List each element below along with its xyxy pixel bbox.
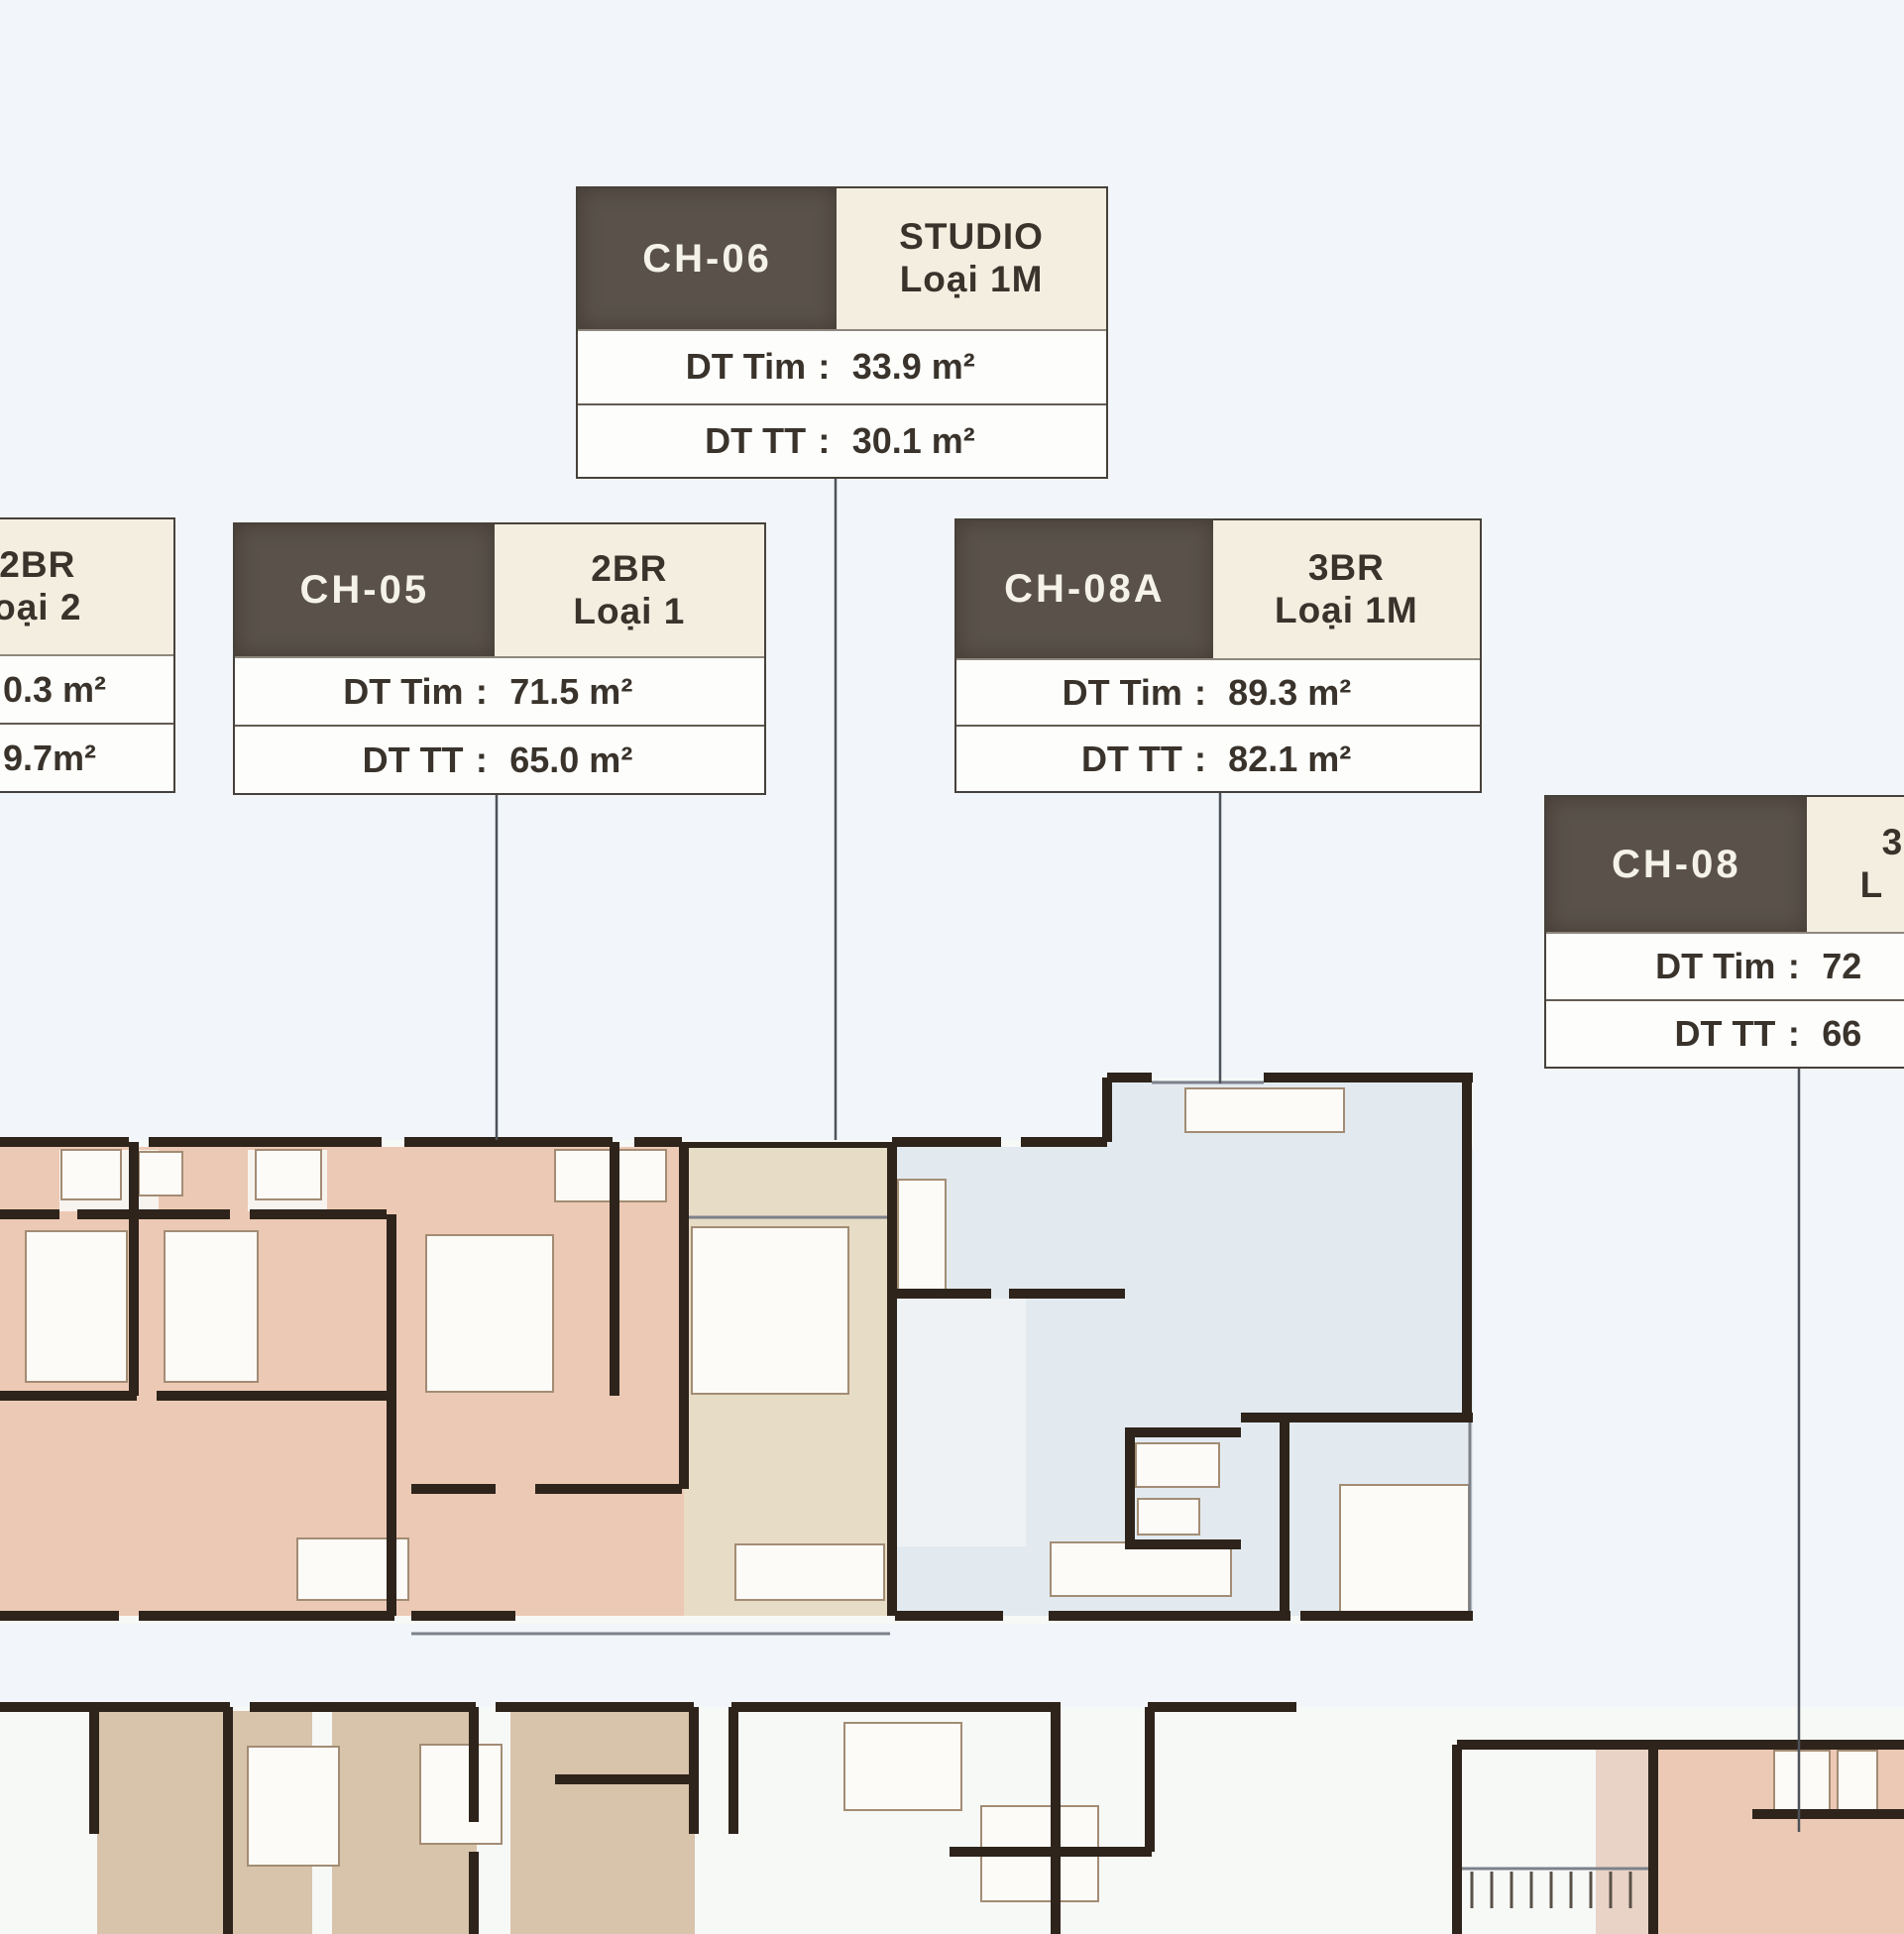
unit-card-ch08a: CH-08A 3BR Loại 1M DT Tim : 89.3 m² DT T… [954, 518, 1482, 793]
bath-fixture [139, 1152, 182, 1195]
area-value: 71.5 m² [500, 671, 764, 713]
bath-fixture [1136, 1443, 1219, 1487]
bed [426, 1235, 553, 1392]
area-row-tim: DT Tim : 89.3 m² [956, 660, 1480, 725]
unit-type-line1: 3BR [1308, 547, 1385, 590]
area-row-tt: DT TT : 82.1 m² [956, 725, 1480, 791]
bed [26, 1231, 127, 1382]
unit-type-line1: 3 [1882, 822, 1904, 864]
separator: : [1775, 1013, 1812, 1055]
separator: : [464, 671, 501, 713]
sofa [898, 1180, 946, 1297]
area-value: 33.9 m² [842, 346, 1106, 388]
bed [1185, 1088, 1344, 1132]
area-label: DT TT [578, 420, 806, 462]
card-header: CH-05 2BR Loại 1 [235, 524, 764, 658]
area-row-tim: DT Tim : 71.5 m² [235, 658, 764, 725]
unit-type: 3 L [1807, 797, 1904, 932]
area-value: 0.3 m² [3, 669, 106, 711]
furniture-block [420, 1745, 502, 1844]
area-label: DT Tim [578, 346, 806, 388]
kitchen-counter [735, 1544, 884, 1600]
furniture-block [844, 1723, 961, 1810]
unit-type: 2BR oại 2 [0, 519, 173, 654]
unit-type-line2: oại 2 [0, 587, 81, 629]
separator: : [464, 739, 501, 781]
unit-type-line1: 2BR [591, 548, 667, 591]
unit-card-ch08: CH-08 3 L DT Tim : 72 DT TT : 66 [1544, 795, 1904, 1069]
separator: : [1775, 946, 1812, 987]
bed [692, 1227, 848, 1394]
lower-unit-tan-c [510, 1711, 695, 1934]
separator: : [1182, 739, 1218, 780]
bed [165, 1231, 258, 1382]
card-header: CH-08A 3BR Loại 1M [956, 520, 1480, 660]
area-value: 66 [1812, 1013, 1904, 1055]
unit-type-line1: STUDIO [899, 216, 1044, 259]
unit-card-ch06: CH-06 STUDIO Loại 1M DT Tim : 33.9 m² DT… [576, 186, 1108, 479]
window [1838, 1751, 1877, 1810]
area-label: DT TT [956, 739, 1182, 780]
unit-code-badge: CH-06 [578, 188, 837, 329]
separator: : [1182, 672, 1218, 714]
area-value: 9.7m² [3, 738, 96, 779]
unit-card-ch05: CH-05 2BR Loại 1 DT Tim : 71.5 m² DT TT … [233, 522, 766, 795]
unit-code-badge: CH-08A [956, 520, 1213, 658]
bath-fixture [256, 1150, 321, 1199]
unit-card-left-partial: 2BR oại 2 0.3 m² 9.7m² [0, 517, 175, 793]
bed [1340, 1485, 1469, 1612]
area-value: 65.0 m² [500, 739, 764, 781]
area-row-tt: 9.7m² [0, 723, 173, 791]
area-row-tim: DT Tim : 33.9 m² [578, 331, 1106, 403]
unit-type-line2: Loại 1M [900, 259, 1044, 301]
unit-code: CH-06 [642, 237, 772, 282]
bath-fixture [61, 1150, 121, 1199]
kitchen-counter [1051, 1542, 1231, 1596]
separator: : [806, 420, 842, 462]
floor-plan-page: 2BR oại 2 0.3 m² 9.7m² CH-05 2BR Loại 1 … [0, 0, 1904, 1934]
area-label: DT Tim [235, 671, 464, 713]
card-header: 2BR oại 2 [0, 519, 173, 656]
unit-type: 3BR Loại 1M [1213, 520, 1480, 658]
separator: : [806, 346, 842, 388]
unit-code-badge: CH-08 [1546, 797, 1807, 932]
area-label: DT Tim [1546, 946, 1775, 987]
card-header: CH-06 STUDIO Loại 1M [578, 188, 1106, 331]
unit-code: CH-08 [1612, 843, 1741, 887]
card-header: CH-08 3 L [1546, 797, 1904, 934]
area-row-tt: DT TT : 66 [1546, 999, 1904, 1067]
area-value: 82.1 m² [1218, 739, 1480, 780]
bath-fixture [1138, 1499, 1199, 1535]
unit-type-line2: Loại 1 [573, 591, 685, 633]
unit-type-line2: Loại 1M [1275, 590, 1418, 632]
unit-code: CH-05 [300, 568, 430, 613]
area-row-tim: 0.3 m² [0, 656, 173, 723]
area-value: 72 [1812, 946, 1904, 987]
area-row-tt: DT TT : 30.1 m² [578, 403, 1106, 478]
unit-type-line1: 2BR [0, 544, 75, 587]
area-value: 89.3 m² [1218, 672, 1480, 714]
unit-code: CH-08A [1004, 567, 1165, 612]
area-label: DT TT [1546, 1013, 1775, 1055]
furniture-block [248, 1747, 339, 1866]
unit-type: 2BR Loại 1 [495, 524, 764, 656]
window [1774, 1751, 1830, 1810]
area-label: DT Tim [956, 672, 1182, 714]
area-label: DT TT [235, 739, 464, 781]
area-row-tt: DT TT : 65.0 m² [235, 725, 764, 793]
unit-type: STUDIO Loại 1M [837, 188, 1106, 329]
area-row-tim: DT Tim : 72 [1546, 934, 1904, 999]
unit-type-line2: L [1860, 864, 1884, 907]
unit-code-badge: CH-05 [235, 524, 495, 656]
area-value: 30.1 m² [842, 420, 1106, 462]
